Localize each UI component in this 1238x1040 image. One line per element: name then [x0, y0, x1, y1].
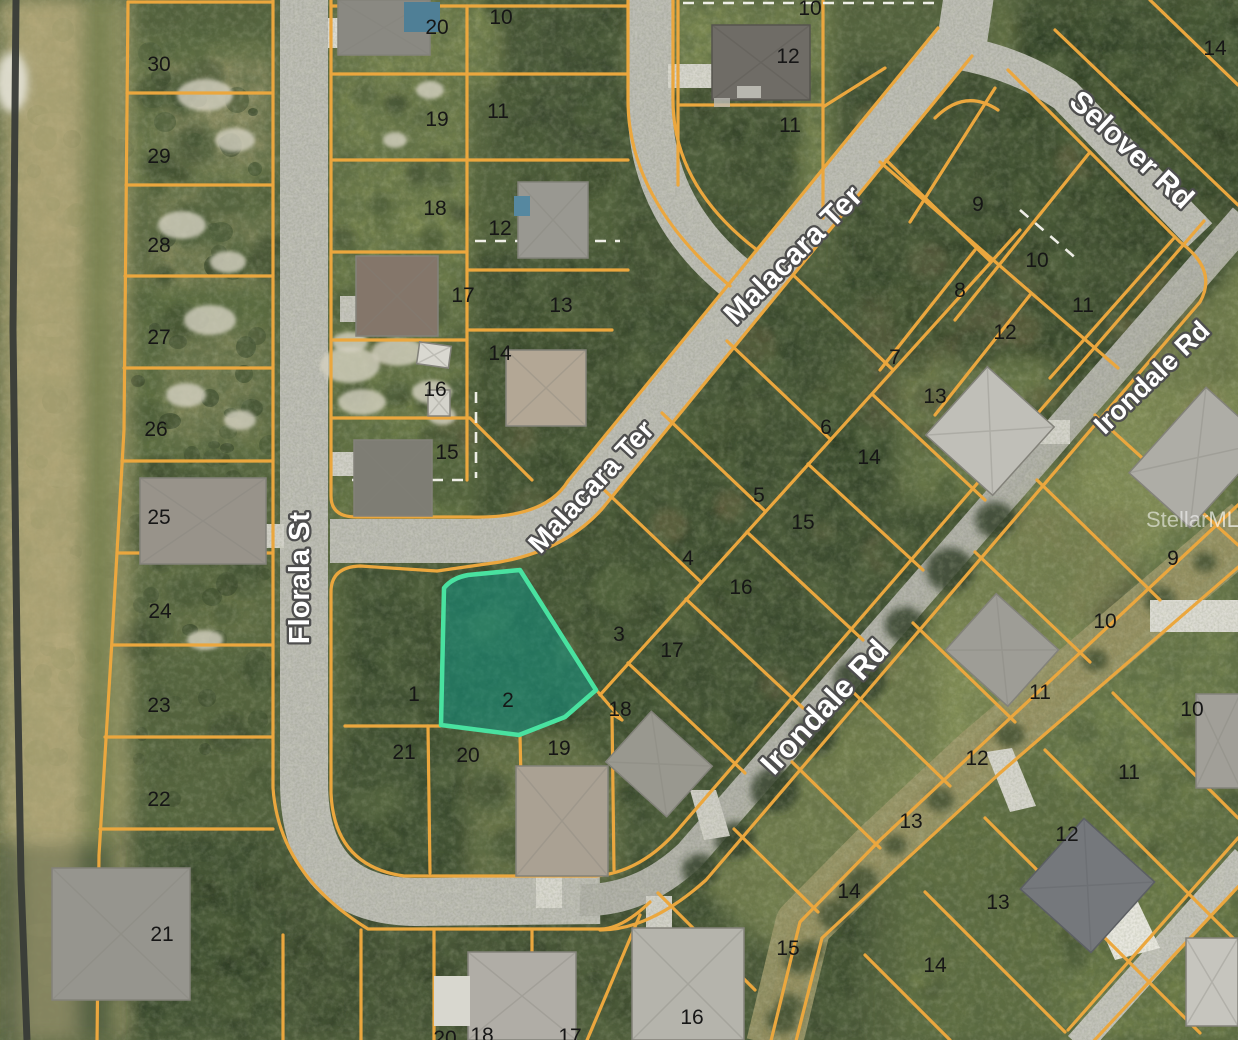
svg-text:4: 4: [682, 547, 694, 570]
svg-text:10: 10: [489, 6, 512, 29]
svg-text:18: 18: [608, 698, 631, 721]
svg-text:8: 8: [954, 279, 966, 302]
svg-text:14: 14: [923, 954, 947, 977]
svg-text:Florala St: Florala St: [284, 512, 316, 644]
svg-text:25: 25: [147, 506, 170, 529]
svg-text:21: 21: [150, 923, 173, 946]
svg-text:11: 11: [779, 114, 801, 137]
svg-text:12: 12: [965, 747, 988, 770]
svg-text:26: 26: [144, 418, 167, 441]
svg-text:14: 14: [857, 446, 881, 469]
svg-text:14: 14: [1203, 37, 1227, 60]
svg-text:16: 16: [680, 1006, 703, 1029]
svg-text:13: 13: [549, 294, 572, 317]
svg-text:16: 16: [729, 576, 752, 599]
svg-text:18: 18: [470, 1024, 493, 1040]
svg-text:1: 1: [408, 683, 420, 706]
svg-text:11: 11: [1118, 761, 1140, 784]
svg-text:21: 21: [392, 741, 415, 764]
svg-text:15: 15: [791, 511, 814, 534]
svg-text:14: 14: [837, 880, 861, 903]
svg-text:19: 19: [425, 108, 448, 131]
svg-text:29: 29: [147, 145, 170, 168]
svg-text:17: 17: [660, 639, 683, 662]
svg-text:StellarMLS: StellarMLS: [1146, 507, 1238, 532]
svg-text:11: 11: [487, 100, 509, 123]
svg-text:10: 10: [1180, 698, 1203, 721]
svg-text:9: 9: [972, 193, 984, 216]
svg-text:12: 12: [488, 217, 511, 240]
svg-text:13: 13: [986, 891, 1009, 914]
svg-text:10: 10: [1025, 249, 1048, 272]
svg-text:30: 30: [147, 53, 170, 76]
svg-text:11: 11: [1029, 681, 1051, 704]
svg-text:17: 17: [451, 284, 474, 307]
svg-text:9: 9: [1167, 547, 1179, 570]
svg-text:12: 12: [1055, 823, 1078, 846]
svg-text:2: 2: [502, 689, 514, 712]
svg-text:18: 18: [423, 197, 446, 220]
svg-text:20: 20: [425, 16, 448, 39]
svg-text:3: 3: [613, 623, 625, 646]
svg-text:10: 10: [798, 0, 821, 20]
svg-text:28: 28: [147, 234, 170, 257]
svg-text:11: 11: [1072, 294, 1094, 317]
svg-text:6: 6: [820, 416, 832, 439]
svg-text:15: 15: [435, 441, 458, 464]
svg-text:17: 17: [558, 1025, 581, 1040]
svg-text:13: 13: [899, 810, 922, 833]
svg-text:10: 10: [1093, 610, 1116, 633]
svg-text:12: 12: [993, 321, 1016, 344]
svg-text:13: 13: [923, 385, 946, 408]
svg-text:16: 16: [423, 378, 446, 401]
svg-text:19: 19: [547, 737, 570, 760]
svg-text:22: 22: [147, 788, 170, 811]
svg-text:5: 5: [753, 484, 765, 507]
svg-text:20: 20: [456, 744, 479, 767]
svg-text:20: 20: [433, 1027, 456, 1040]
svg-text:15: 15: [776, 937, 799, 960]
svg-text:12: 12: [776, 45, 799, 68]
svg-text:24: 24: [148, 600, 172, 623]
svg-text:23: 23: [147, 694, 170, 717]
svg-text:14: 14: [488, 342, 512, 365]
svg-text:27: 27: [147, 326, 170, 349]
svg-text:7: 7: [889, 346, 901, 369]
